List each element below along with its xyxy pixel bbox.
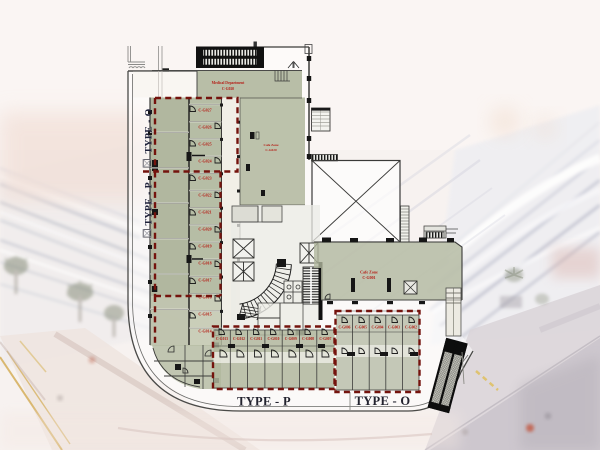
svg-text:C-G020: C-G020: [265, 148, 277, 152]
svg-text:C-G017: C-G017: [198, 278, 211, 283]
svg-text:C-G020: C-G020: [222, 87, 234, 91]
svg-text:C-G002: C-G002: [405, 326, 417, 330]
svg-text:Medical Department: Medical Department: [212, 81, 245, 85]
svg-text:TYPE - O: TYPE - O: [144, 108, 155, 153]
svg-text:C-G015: C-G015: [198, 312, 211, 317]
svg-text:C-G007: C-G007: [319, 337, 331, 341]
svg-text:TYPE - O: TYPE - O: [355, 394, 411, 408]
svg-text:C-G022: C-G022: [198, 193, 211, 198]
svg-text:C-G020: C-G020: [198, 227, 211, 232]
svg-text:C-G001: C-G001: [362, 275, 375, 280]
svg-text:C-G011: C-G011: [250, 337, 262, 341]
svg-text:C-G012: C-G012: [233, 337, 245, 341]
svg-text:C-G003: C-G003: [388, 326, 400, 330]
svg-text:Cafe Zone: Cafe Zone: [264, 143, 279, 147]
svg-text:C-G023: C-G023: [198, 176, 211, 181]
svg-text:TYPE - P: TYPE - P: [237, 395, 291, 409]
svg-text:C-G027: C-G027: [198, 108, 211, 113]
svg-text:TYPE - P: TYPE - P: [144, 182, 155, 225]
svg-text:C-G014: C-G014: [198, 329, 211, 334]
svg-text:C-G025: C-G025: [198, 142, 211, 147]
svg-text:C-G019: C-G019: [198, 244, 211, 249]
svg-text:Cafe Zone: Cafe Zone: [360, 270, 378, 275]
svg-text:C-G024: C-G024: [198, 159, 211, 164]
svg-text:C-G009: C-G009: [285, 337, 297, 341]
svg-text:C-G018: C-G018: [198, 261, 211, 266]
svg-text:C-G013: C-G013: [216, 337, 228, 341]
svg-text:C-G026: C-G026: [198, 125, 211, 130]
svg-text:C-G010: C-G010: [268, 337, 280, 341]
svg-text:C-G008: C-G008: [302, 337, 314, 341]
svg-text:C-G004: C-G004: [372, 326, 384, 330]
svg-text:C-G005: C-G005: [355, 326, 367, 330]
svg-text:C-G021: C-G021: [198, 210, 211, 215]
svg-text:C-G006: C-G006: [339, 326, 351, 330]
